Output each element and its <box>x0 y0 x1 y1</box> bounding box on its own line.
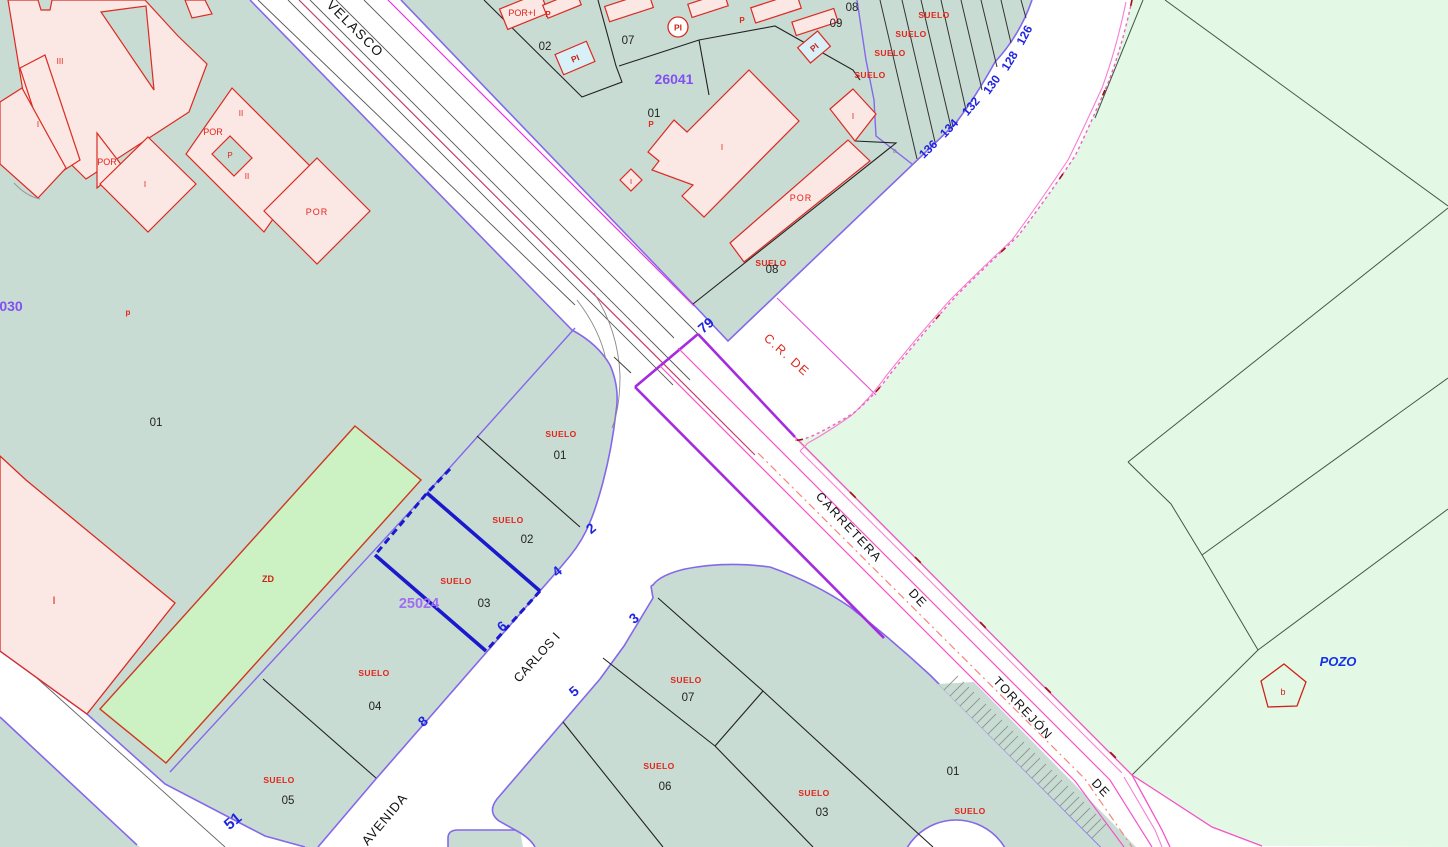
svg-text:p: p <box>126 308 131 317</box>
svg-text:PI: PI <box>674 23 682 33</box>
svg-text:POR+I: POR+I <box>508 8 535 18</box>
svg-text:II: II <box>245 172 249 181</box>
svg-text:08: 08 <box>766 264 779 276</box>
svg-text:08: 08 <box>846 2 859 14</box>
svg-text:I: I <box>144 180 146 189</box>
svg-text:I: I <box>852 112 854 121</box>
svg-text:SUELO: SUELO <box>643 761 674 771</box>
svg-text:ZD: ZD <box>262 574 274 584</box>
svg-text:030: 030 <box>0 298 23 314</box>
svg-text:I: I <box>630 177 632 186</box>
svg-text:SUELO: SUELO <box>440 576 471 586</box>
svg-text:04: 04 <box>369 701 382 713</box>
svg-text:SUELO: SUELO <box>954 806 985 816</box>
svg-text:25024: 25024 <box>399 596 439 612</box>
svg-text:01: 01 <box>150 417 163 429</box>
svg-text:POR: POR <box>306 207 329 217</box>
svg-text:III: III <box>57 57 64 66</box>
svg-text:SUELO: SUELO <box>492 515 523 525</box>
svg-text:SUELO: SUELO <box>545 429 576 439</box>
svg-text:a: a <box>893 148 897 155</box>
svg-text:SUELO: SUELO <box>670 675 701 685</box>
svg-text:I: I <box>721 143 723 152</box>
svg-text:SUELO: SUELO <box>798 788 829 798</box>
svg-text:P: P <box>545 10 551 19</box>
svg-text:01: 01 <box>554 450 567 462</box>
svg-text:07: 07 <box>622 35 635 47</box>
svg-text:I: I <box>37 120 39 129</box>
svg-text:06: 06 <box>659 781 672 793</box>
svg-text:SUELO: SUELO <box>895 29 926 39</box>
svg-text:SUELO: SUELO <box>263 775 294 785</box>
svg-text:02: 02 <box>521 534 534 546</box>
svg-text:POZO: POZO <box>1320 654 1357 669</box>
svg-text:01: 01 <box>947 766 960 778</box>
svg-text:05: 05 <box>282 795 295 807</box>
svg-text:POR: POR <box>203 127 223 137</box>
svg-text:I: I <box>52 595 55 607</box>
svg-text:SUELO: SUELO <box>854 70 885 80</box>
svg-text:P: P <box>739 16 745 25</box>
svg-text:P: P <box>648 120 654 129</box>
svg-text:SUELO: SUELO <box>918 10 949 20</box>
svg-text:POR: POR <box>97 157 117 167</box>
svg-text:02: 02 <box>539 41 552 53</box>
svg-text:POR: POR <box>790 193 813 203</box>
svg-text:II: II <box>239 109 243 118</box>
svg-text:P: P <box>227 151 232 160</box>
svg-text:03: 03 <box>478 598 491 610</box>
svg-text:01: 01 <box>648 108 661 120</box>
svg-text:07: 07 <box>682 692 695 704</box>
svg-text:03: 03 <box>816 807 829 819</box>
svg-text:09: 09 <box>830 18 843 30</box>
svg-text:26041: 26041 <box>655 71 694 87</box>
svg-text:SUELO: SUELO <box>874 48 905 58</box>
svg-text:SUELO: SUELO <box>358 668 389 678</box>
svg-text:b: b <box>1280 687 1285 697</box>
